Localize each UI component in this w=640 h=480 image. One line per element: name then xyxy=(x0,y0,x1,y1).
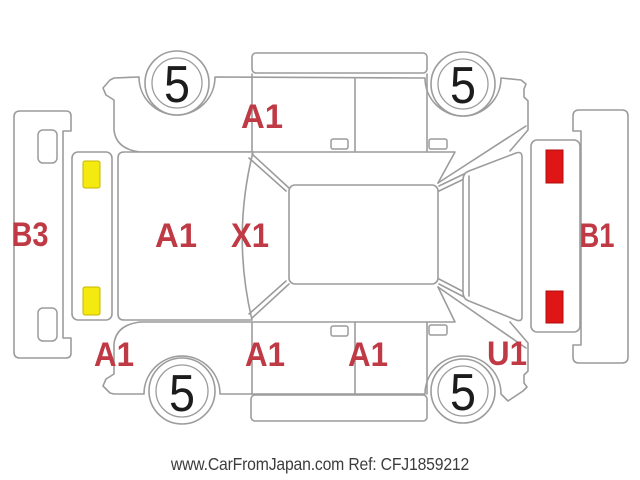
front-marker-bottom xyxy=(83,287,100,315)
a-pillar-bottom-line xyxy=(249,281,289,318)
damage-label-hood: A1 xyxy=(155,217,197,255)
bottom-window-strip xyxy=(251,395,427,421)
top-rear-door-handle xyxy=(429,139,447,149)
wheel-top-front: 5 xyxy=(145,51,209,115)
bottom-front-door-handle xyxy=(331,326,348,336)
tread-depth-bottom-rear: 5 xyxy=(450,364,476,422)
tread-depth-top-rear: 5 xyxy=(450,57,476,115)
tread-depth-bottom-front: 5 xyxy=(169,365,195,423)
tail-lamp-bottom xyxy=(546,291,563,323)
damage-label-bottom-rear-door: A1 xyxy=(348,336,388,374)
bottom-rear-door-handle xyxy=(429,325,447,335)
wheel-top-rear: 5 xyxy=(431,52,495,116)
top-front-door-handle xyxy=(331,139,348,149)
rear-hatch-glass xyxy=(463,153,522,321)
headlight-top xyxy=(38,130,57,163)
watermark-text: www.CarFromJapan.com Ref: CFJ1859212 xyxy=(32,452,608,478)
damage-label-bottom-rear-fender: U1 xyxy=(487,335,527,373)
vehicle-damage-diagram: 5 5 5 5 A1 A1 X1 B3 B1 A1 A1 A1 U1 www.C… xyxy=(0,0,640,480)
damage-label-bottom-front-door: A1 xyxy=(245,336,285,374)
damage-label-top-front-door: A1 xyxy=(241,98,283,136)
wheel-bottom-rear: 5 xyxy=(431,359,495,423)
top-window-strip xyxy=(252,53,427,73)
damage-label-rear-bumper: B1 xyxy=(580,217,615,255)
wheel-bottom-front: 5 xyxy=(149,358,215,424)
damage-label-windshield: X1 xyxy=(231,217,269,255)
tail-lamp-top xyxy=(546,150,563,183)
front-marker-top xyxy=(83,161,100,188)
headlight-bottom xyxy=(38,308,57,341)
tread-depth-top-front: 5 xyxy=(164,56,190,114)
roof-panel xyxy=(289,185,438,284)
c-pillar-top-line xyxy=(439,173,466,191)
damage-label-bottom-front-fender: A1 xyxy=(94,336,134,374)
a-pillar-top-line xyxy=(249,154,289,191)
vehicle-diagram-svg: 5 5 5 5 A1 A1 X1 B3 B1 A1 A1 A1 U1 xyxy=(0,0,640,480)
damage-label-front-bumper: B3 xyxy=(12,216,49,254)
c-pillar-bottom-line xyxy=(439,279,466,298)
